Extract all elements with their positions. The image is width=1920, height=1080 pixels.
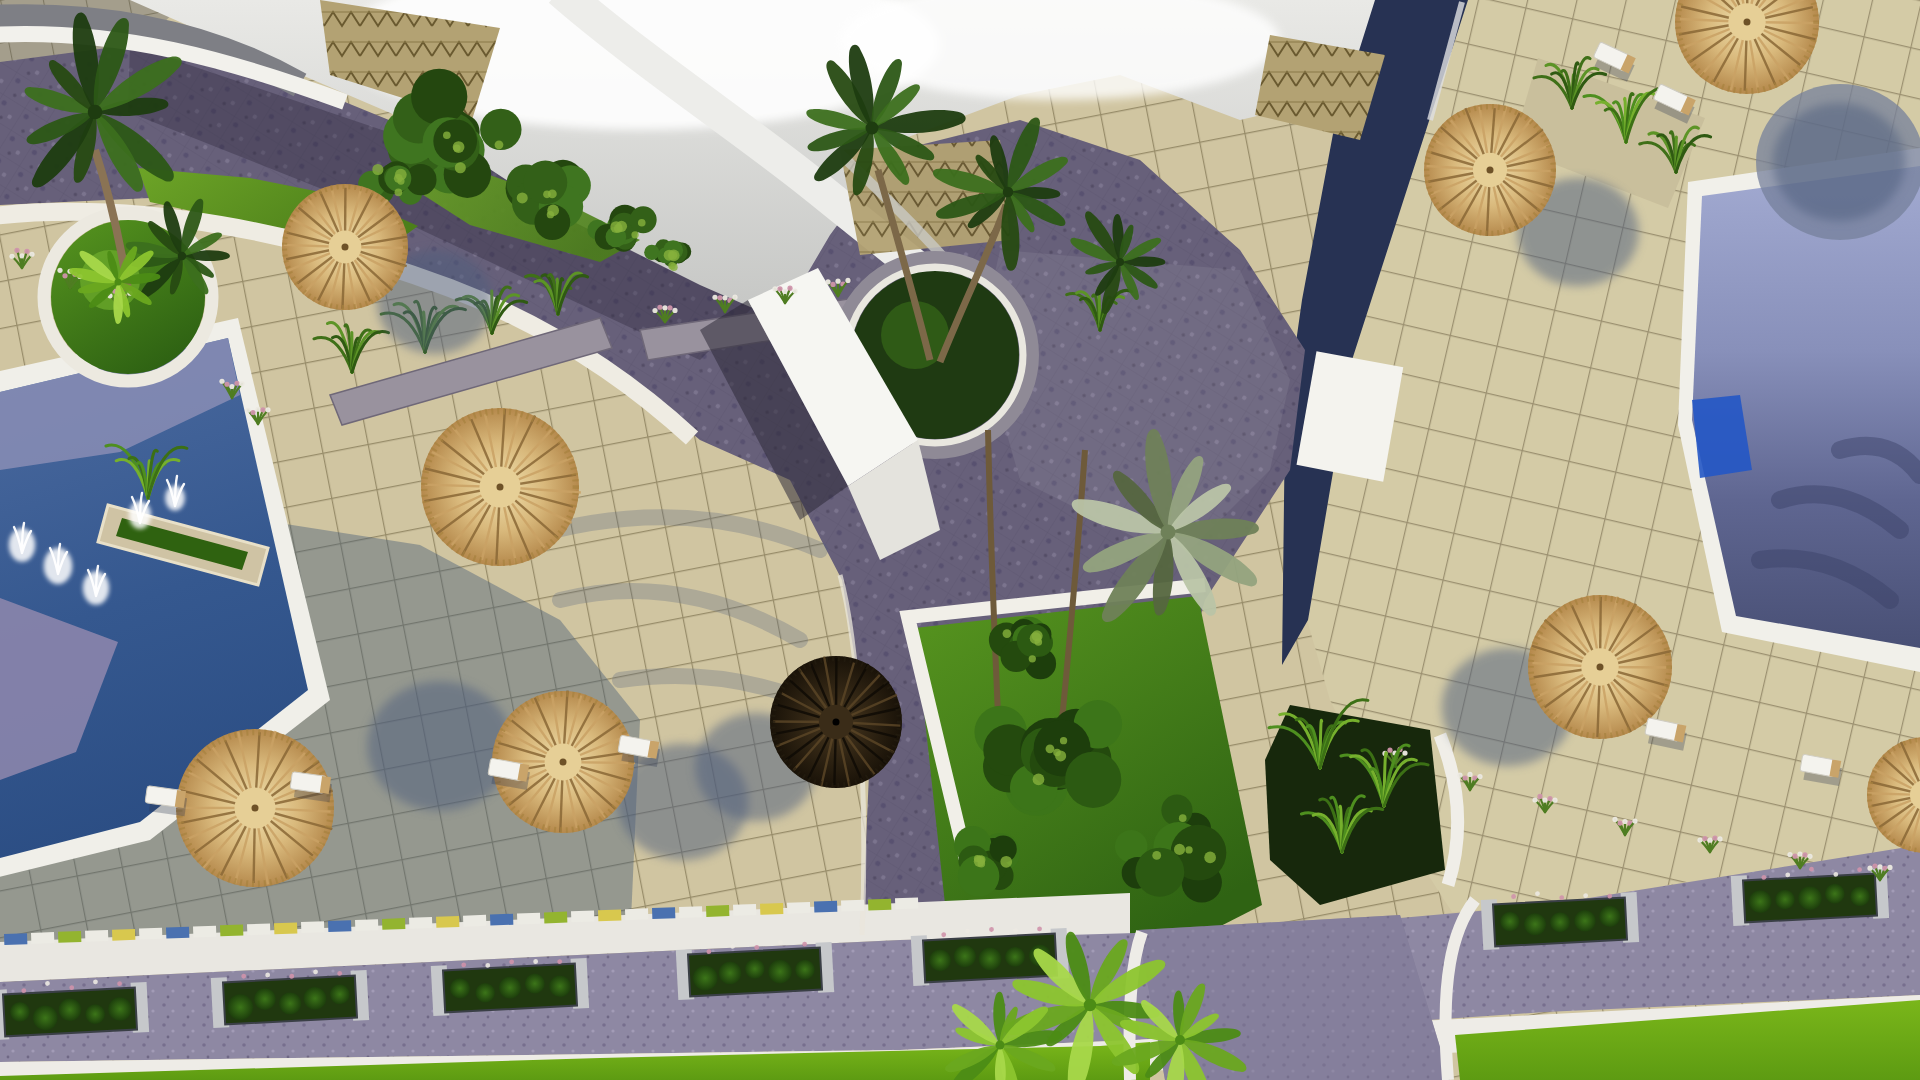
trim-tile [598,909,621,921]
parasol [176,729,334,887]
trim-tile [787,902,810,914]
scene-canvas [0,0,1920,1080]
fern-planter [1265,705,1445,905]
trim-tile [4,933,27,945]
trim-tile [31,932,54,944]
parasol-dark [770,656,902,788]
trim-tile [760,903,783,915]
trim-tile [301,921,324,933]
trim-tile [733,904,756,916]
trim-tile [274,922,297,934]
trim-tile [679,906,702,918]
trim-tile [490,914,513,926]
trim-tile [625,908,648,920]
trim-tile [814,901,837,913]
trim-tile [436,916,459,928]
trim-tile [544,912,567,924]
parasol [282,184,408,310]
trim-tile [895,898,918,910]
trim-tile [247,923,270,935]
resort-aerial-render [0,0,1920,1080]
trim-tile [571,911,594,923]
trim-tile [355,919,378,931]
trim-tile [868,899,891,911]
trim-tile [220,925,243,937]
trim-tile [166,927,189,939]
trim-tile [409,917,432,929]
trim-tile [139,928,162,940]
trim-tile [382,918,405,930]
trim-tile [328,920,351,932]
parasol-shadow [1773,103,1905,221]
trim-tile [85,930,108,942]
trim-tile [58,931,81,943]
trim-tile [463,915,486,927]
trim-tile [112,929,135,941]
trim-tile [517,913,540,925]
trim-tile [706,905,729,917]
parasol-shadow [367,681,512,811]
parasol [1528,595,1672,739]
trim-tile [841,900,864,912]
trim-tile [652,907,675,919]
trim-tile [193,926,216,938]
parasol [1424,104,1556,236]
